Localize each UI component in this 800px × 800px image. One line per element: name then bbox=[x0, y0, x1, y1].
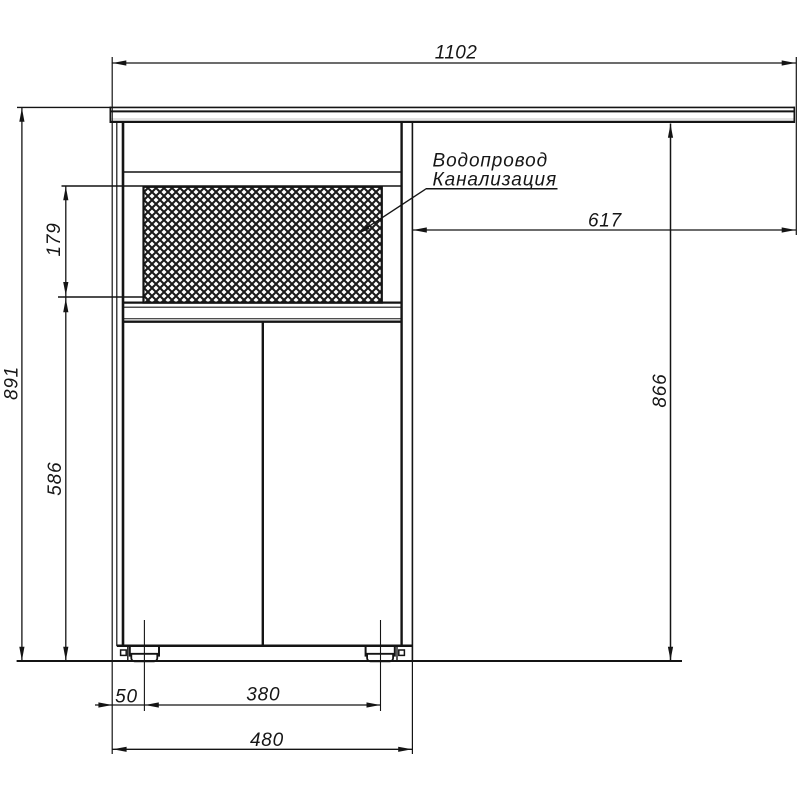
svg-text:617: 617 bbox=[588, 211, 623, 232]
svg-text:480: 480 bbox=[250, 730, 284, 751]
svg-text:50: 50 bbox=[115, 687, 138, 708]
svg-text:586: 586 bbox=[45, 462, 66, 496]
svg-text:179: 179 bbox=[44, 222, 65, 256]
svg-text:380: 380 bbox=[246, 685, 280, 706]
svg-text:891: 891 bbox=[2, 366, 23, 400]
svg-text:Водопровод: Водопровод bbox=[433, 150, 548, 171]
svg-text:1102: 1102 bbox=[435, 43, 477, 64]
svg-text:866: 866 bbox=[650, 374, 671, 408]
svg-text:Канализация: Канализация bbox=[433, 170, 558, 191]
